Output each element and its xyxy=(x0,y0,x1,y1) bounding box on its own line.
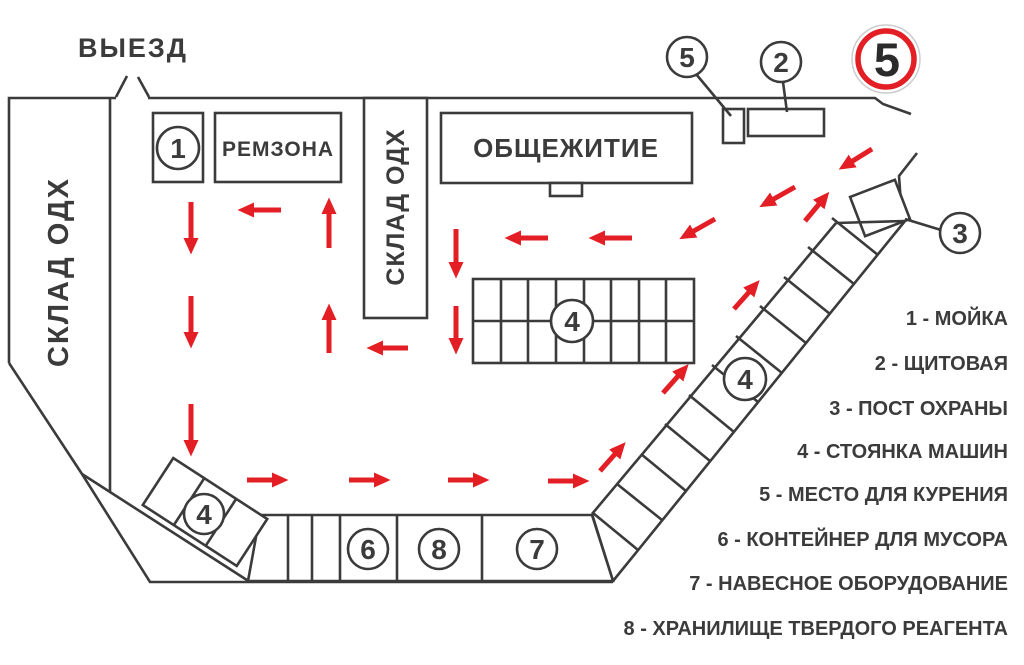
smoking-leader-line xyxy=(696,74,731,116)
parking-diagonal-marker-number: 4 xyxy=(737,364,753,395)
arrow-up-right xyxy=(734,291,750,309)
arrow-down-left xyxy=(692,219,715,232)
legend-item: 8 - ХРАНИЛИЩЕ ТВЕРДОГО РЕАГЕНТА xyxy=(624,618,1008,640)
sign-value: 5 xyxy=(874,33,900,86)
parking-bl-marker-number: 4 xyxy=(196,499,212,530)
arrow-down-left xyxy=(851,149,872,162)
legend-item: 7 - НАВЕСНОЕ ОБОРУДОВАНИЕ xyxy=(689,573,1008,595)
arrow-up-right xyxy=(600,453,616,471)
smoking-marker-number: 5 xyxy=(679,42,695,73)
plan-canvas: ВЫЕЗД СКЛАД ОДХ 1 РЕМЗОНА СКЛАД ОДХ ОБЩЕ… xyxy=(0,0,1024,665)
parking-central-marker-number: 4 xyxy=(564,306,580,337)
site-traffic-plan: ВЫЕЗД СКЛАД ОДХ 1 РЕМЗОНА СКЛАД ОДХ ОБЩЕ… xyxy=(0,0,1024,665)
parking-grid-central: 4 xyxy=(473,279,694,363)
smoking-place-box xyxy=(723,109,744,143)
exit-label: ВЫЕЗД xyxy=(78,33,188,63)
switchboard-box xyxy=(748,109,824,136)
legend-item: 6 - КОНТЕЙНЕР ДЛЯ МУСОРА xyxy=(717,527,1008,551)
switchboard-marker-number: 2 xyxy=(773,47,789,78)
exit-gate-tick-right xyxy=(138,77,149,97)
guard-post-leader-line xyxy=(905,219,941,230)
wash-marker-number: 1 xyxy=(170,133,186,164)
exit-gate-tick-left xyxy=(116,76,127,97)
legend-item: 5 - МЕСТО ДЛЯ КУРЕНИЯ xyxy=(759,484,1008,506)
equipment-marker-number: 7 xyxy=(529,534,545,565)
legend-item: 2 - ЩИТОВАЯ xyxy=(875,353,1008,375)
warehouse-left-label: СКЛАД ОДХ xyxy=(43,177,75,367)
trash-marker-number: 6 xyxy=(360,534,376,565)
legend-item: 1 - МОЙКА xyxy=(906,306,1008,330)
dormitory-label: ОБЩЕЖИТИЕ xyxy=(473,133,659,163)
speed-limit-sign: 5 xyxy=(852,25,920,93)
arrow-up-right xyxy=(805,203,820,221)
legend-item: 4 - СТОЯНКА МАШИН xyxy=(797,441,1008,463)
legend-item: 3 - ПОСТ ОХРАНЫ xyxy=(829,398,1008,420)
warehouse-center-label: СКЛАД ОДХ xyxy=(382,128,410,285)
guard-post-marker-number: 3 xyxy=(952,218,968,249)
reagent-marker-number: 8 xyxy=(431,534,447,565)
arrow-up-right xyxy=(663,375,679,393)
parking-strip-bottom-left: 4 xyxy=(143,458,267,566)
arrow-down-left xyxy=(772,187,795,200)
bottom-service-strip: 6 8 7 xyxy=(248,515,613,581)
repair-zone-label: РЕМЗОНА xyxy=(222,138,334,161)
dormitory-porch xyxy=(550,183,582,196)
